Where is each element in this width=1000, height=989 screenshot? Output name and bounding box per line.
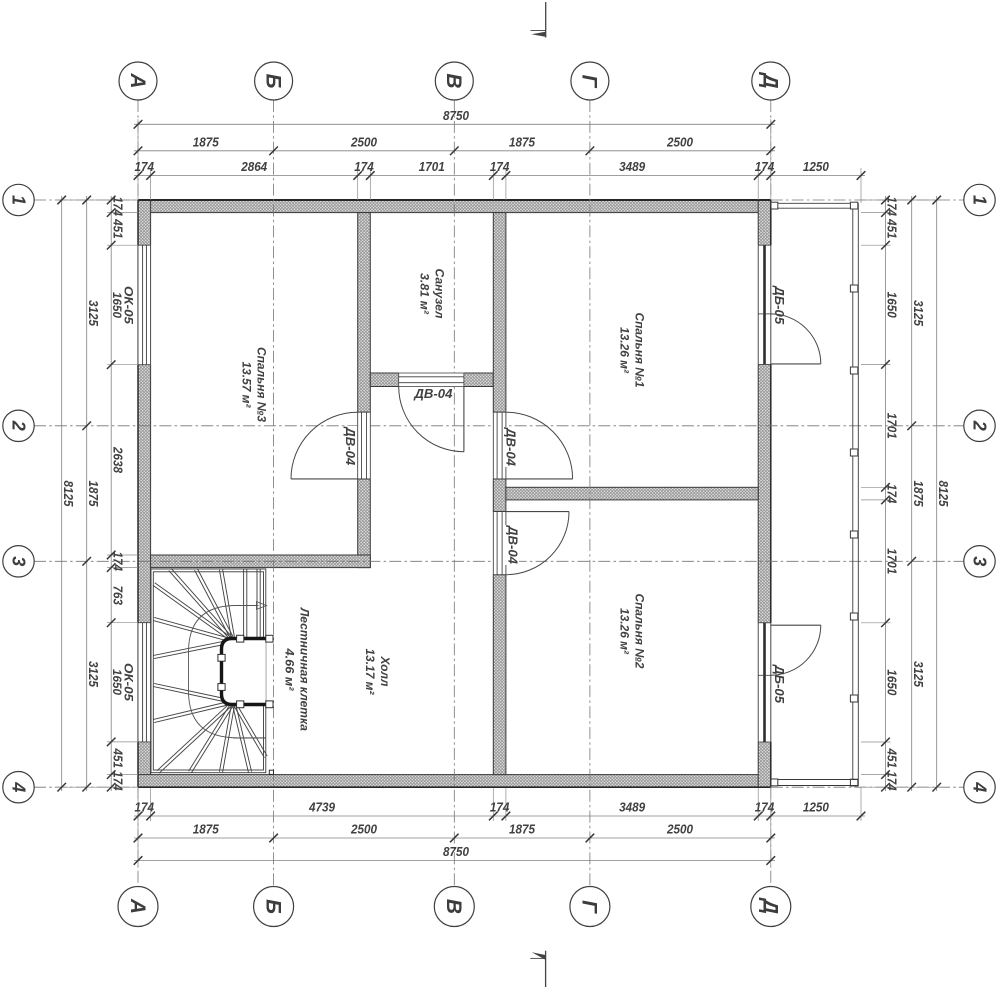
svg-text:13.57 м²: 13.57 м² [240,362,254,409]
svg-text:Санузел: Санузел [433,269,447,319]
svg-text:13.17 м²: 13.17 м² [363,649,377,696]
svg-text:А: А [126,898,149,914]
svg-text:Холл: Холл [378,656,392,687]
svg-text:3: 3 [8,556,28,566]
svg-text:ДВ-04: ДВ-04 [413,387,452,401]
svg-text:Г: Г [578,75,601,89]
svg-text:1: 1 [969,195,989,205]
svg-text:1650: 1650 [110,292,124,318]
svg-text:763: 763 [110,585,125,605]
svg-text:1875: 1875 [911,481,926,508]
svg-text:174: 174 [490,159,510,174]
svg-text:8125: 8125 [936,481,951,508]
svg-text:174: 174 [135,800,155,815]
svg-text:174: 174 [354,159,374,174]
svg-text:1701: 1701 [419,159,445,174]
svg-text:1701: 1701 [885,548,900,574]
svg-text:174: 174 [755,159,775,174]
svg-text:2500: 2500 [350,134,378,149]
svg-text:8750: 8750 [443,108,470,123]
svg-text:2638: 2638 [110,446,125,474]
svg-text:3125: 3125 [86,661,101,688]
svg-text:174: 174 [885,197,900,217]
svg-text:3489: 3489 [619,159,646,174]
svg-text:1875: 1875 [509,134,536,149]
svg-text:Д: Д [759,897,782,914]
svg-text:174: 174 [490,800,510,815]
svg-text:ДВ-04: ДВ-04 [504,427,518,466]
svg-text:ДБ-05: ДБ-05 [772,664,786,704]
svg-text:3125: 3125 [911,300,926,327]
svg-text:ДВ-04: ДВ-04 [506,525,520,564]
svg-text:1250: 1250 [803,159,830,174]
svg-text:2500: 2500 [666,134,694,149]
svg-text:4: 4 [8,781,28,792]
svg-text:4: 4 [969,781,989,792]
svg-text:8750: 8750 [443,844,470,859]
svg-text:Д: Д [759,71,782,88]
svg-text:В: В [442,73,465,88]
svg-text:3.81 м²: 3.81 м² [418,273,432,315]
svg-text:2: 2 [8,420,28,431]
svg-text:Б: Б [261,74,284,89]
svg-text:2: 2 [969,420,989,431]
svg-text:1875: 1875 [509,822,536,837]
svg-text:174: 174 [135,159,155,174]
svg-text:1701: 1701 [885,413,900,439]
svg-text:ДВ-04: ДВ-04 [343,426,357,465]
svg-text:174: 174 [110,197,125,217]
svg-text:1875: 1875 [193,134,220,149]
svg-text:2500: 2500 [666,822,694,837]
svg-text:13.26 м²: 13.26 м² [618,327,632,374]
svg-text:174: 174 [755,800,775,815]
svg-text:174: 174 [885,484,900,504]
svg-text:451: 451 [110,218,125,238]
svg-text:13.26 м²: 13.26 м² [618,608,632,655]
svg-text:3: 3 [969,556,989,566]
svg-text:А: А [126,72,149,88]
svg-text:451: 451 [885,218,900,238]
svg-text:1250: 1250 [803,800,830,815]
svg-text:Лестничная клетка: Лестничная клетка [298,607,312,731]
svg-text:В: В [442,899,465,914]
svg-text:2864: 2864 [240,159,268,174]
svg-text:Спальня №1: Спальня №1 [633,313,647,388]
svg-text:174: 174 [885,771,900,791]
svg-text:4739: 4739 [308,800,336,815]
svg-text:451: 451 [110,748,125,768]
svg-text:3125: 3125 [911,661,926,688]
svg-text:4.66 м²: 4.66 м² [283,647,297,691]
svg-text:Б: Б [261,899,284,914]
svg-text:1875: 1875 [86,481,101,508]
svg-text:174: 174 [110,771,125,791]
svg-text:1650: 1650 [110,669,124,695]
svg-text:3489: 3489 [619,800,646,815]
svg-text:ДБ-05: ДБ-05 [772,285,786,325]
svg-text:1650: 1650 [885,292,900,319]
svg-text:Спальня №3: Спальня №3 [255,347,269,422]
svg-text:1875: 1875 [193,822,220,837]
svg-text:1: 1 [8,195,28,205]
svg-text:3125: 3125 [86,300,101,327]
svg-text:174: 174 [110,552,125,572]
svg-text:Спальня №2: Спальня №2 [633,594,647,669]
svg-text:1650: 1650 [885,669,900,696]
svg-text:451: 451 [885,748,900,768]
svg-text:8125: 8125 [61,481,76,508]
svg-text:2500: 2500 [350,822,378,837]
svg-text:Г: Г [578,900,601,914]
